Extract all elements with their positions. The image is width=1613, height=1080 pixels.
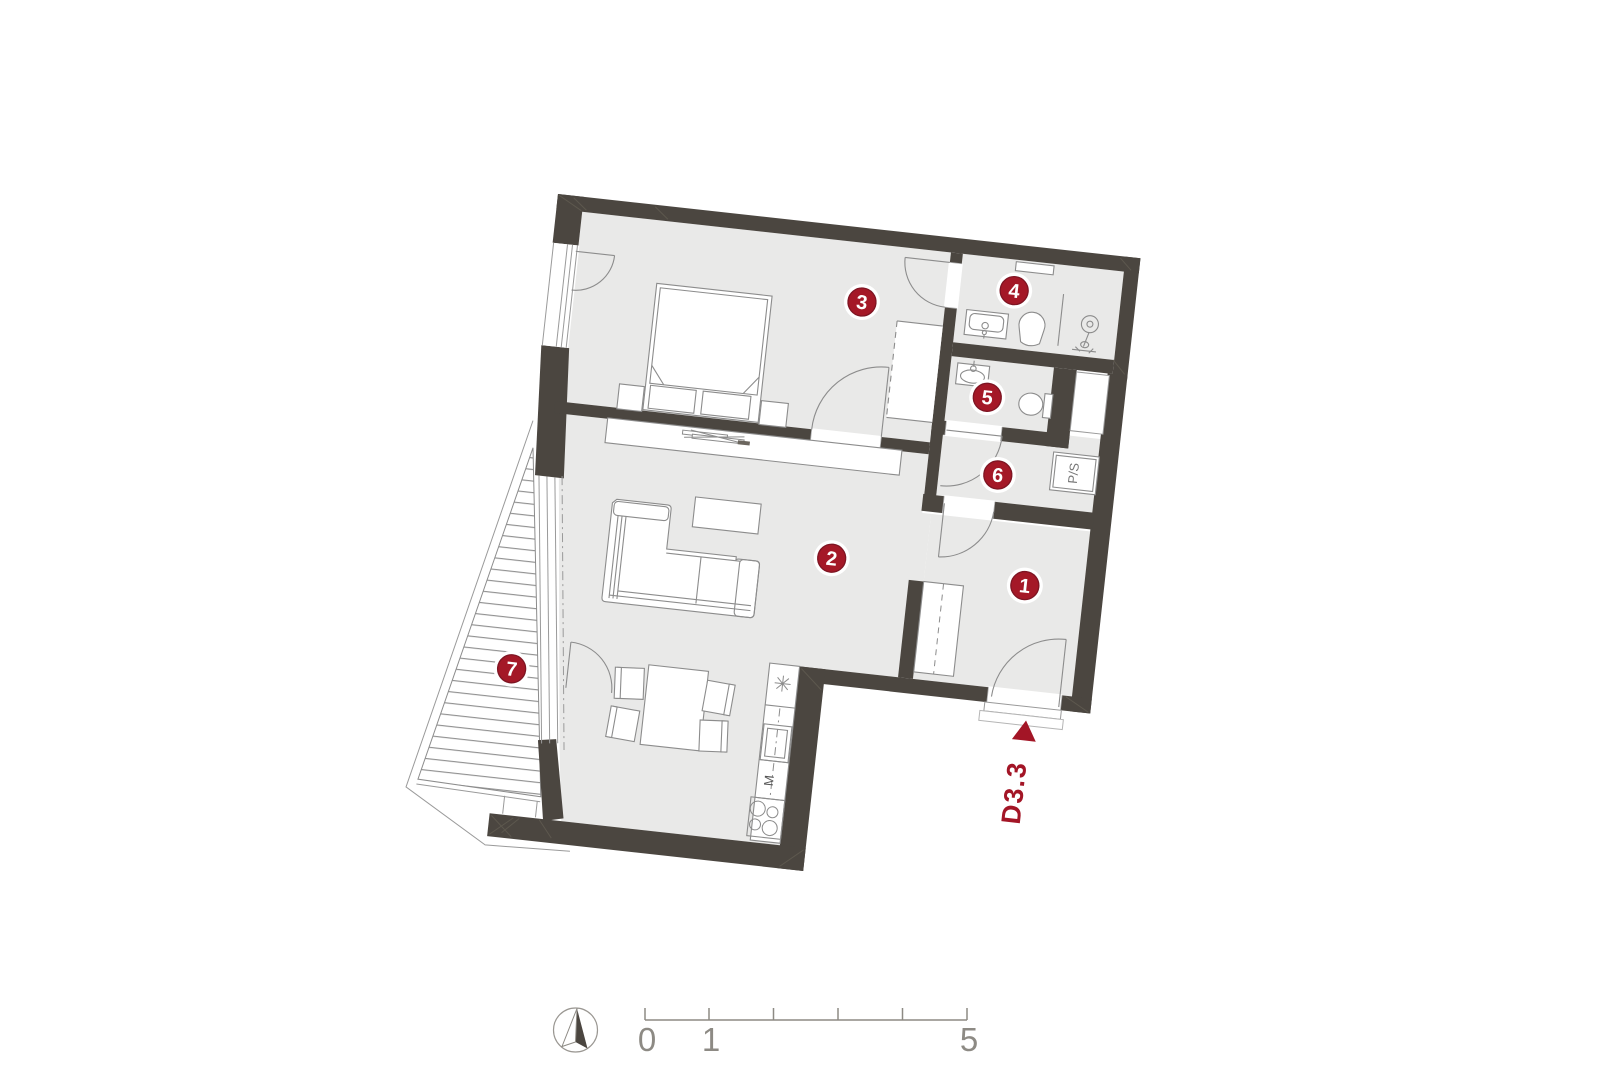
svg-text:1: 1 bbox=[702, 1021, 720, 1058]
svg-text:P/S: P/S bbox=[1065, 462, 1082, 485]
svg-text:0: 0 bbox=[638, 1021, 656, 1058]
svg-text:5: 5 bbox=[960, 1021, 978, 1058]
svg-text:M: M bbox=[761, 774, 777, 786]
